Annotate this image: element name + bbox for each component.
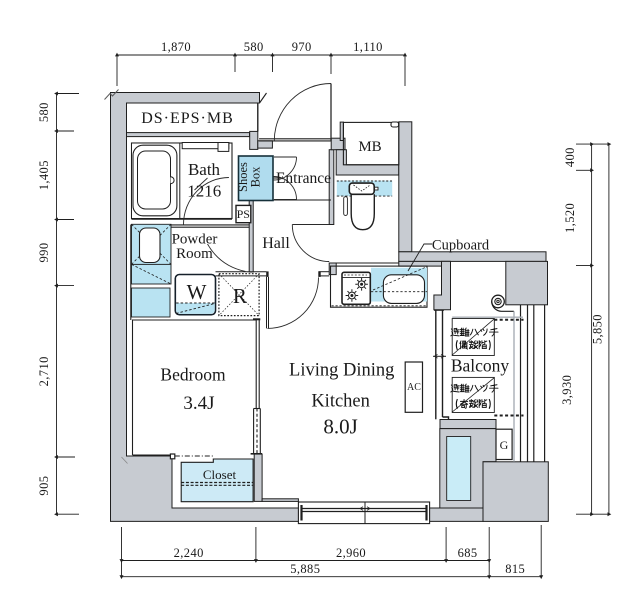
svg-text:815: 815 xyxy=(505,562,525,576)
svg-text:3.4J: 3.4J xyxy=(183,393,214,414)
svg-text:G: G xyxy=(500,438,509,452)
svg-text:AC: AC xyxy=(407,382,421,393)
svg-text:R: R xyxy=(233,284,247,308)
svg-text:Balcony: Balcony xyxy=(451,356,510,376)
svg-text:1,520: 1,520 xyxy=(563,203,577,233)
svg-text:W: W xyxy=(187,280,207,304)
svg-text:Kitchen: Kitchen xyxy=(311,392,370,412)
svg-text:2,960: 2,960 xyxy=(336,546,366,560)
svg-text:970: 970 xyxy=(292,40,312,54)
svg-text:990: 990 xyxy=(37,243,51,263)
svg-text:1,870: 1,870 xyxy=(161,40,191,54)
svg-text:Box: Box xyxy=(249,166,263,188)
svg-text:PS: PS xyxy=(237,207,250,221)
svg-text:Living Dining: Living Dining xyxy=(289,361,394,381)
svg-text:2,240: 2,240 xyxy=(174,546,204,560)
svg-text:580: 580 xyxy=(37,102,51,122)
svg-text:1,405: 1,405 xyxy=(37,160,51,190)
svg-text:5,850: 5,850 xyxy=(591,314,605,344)
svg-text:Cupboard: Cupboard xyxy=(432,238,490,254)
svg-text:580: 580 xyxy=(244,40,264,54)
svg-text:Bath: Bath xyxy=(188,160,221,179)
svg-text:Hall: Hall xyxy=(262,235,290,252)
svg-text:2,710: 2,710 xyxy=(37,356,51,386)
svg-text:3,930: 3,930 xyxy=(560,375,574,405)
svg-text:1,110: 1,110 xyxy=(353,40,383,54)
svg-text:905: 905 xyxy=(37,476,51,496)
svg-text:685: 685 xyxy=(458,546,478,560)
svg-text:400: 400 xyxy=(563,147,577,167)
svg-text:5,885: 5,885 xyxy=(290,562,320,576)
svg-text:Closet: Closet xyxy=(203,467,237,482)
svg-text:1216: 1216 xyxy=(187,182,221,201)
svg-text:8.0J: 8.0J xyxy=(323,415,357,439)
svg-text:Bedroom: Bedroom xyxy=(160,365,226,385)
svg-text:Entrance: Entrance xyxy=(276,170,331,187)
svg-text:MB: MB xyxy=(358,139,381,155)
svg-text:Room: Room xyxy=(176,246,213,262)
svg-text:DS·EPS·MB: DS·EPS·MB xyxy=(141,110,234,127)
